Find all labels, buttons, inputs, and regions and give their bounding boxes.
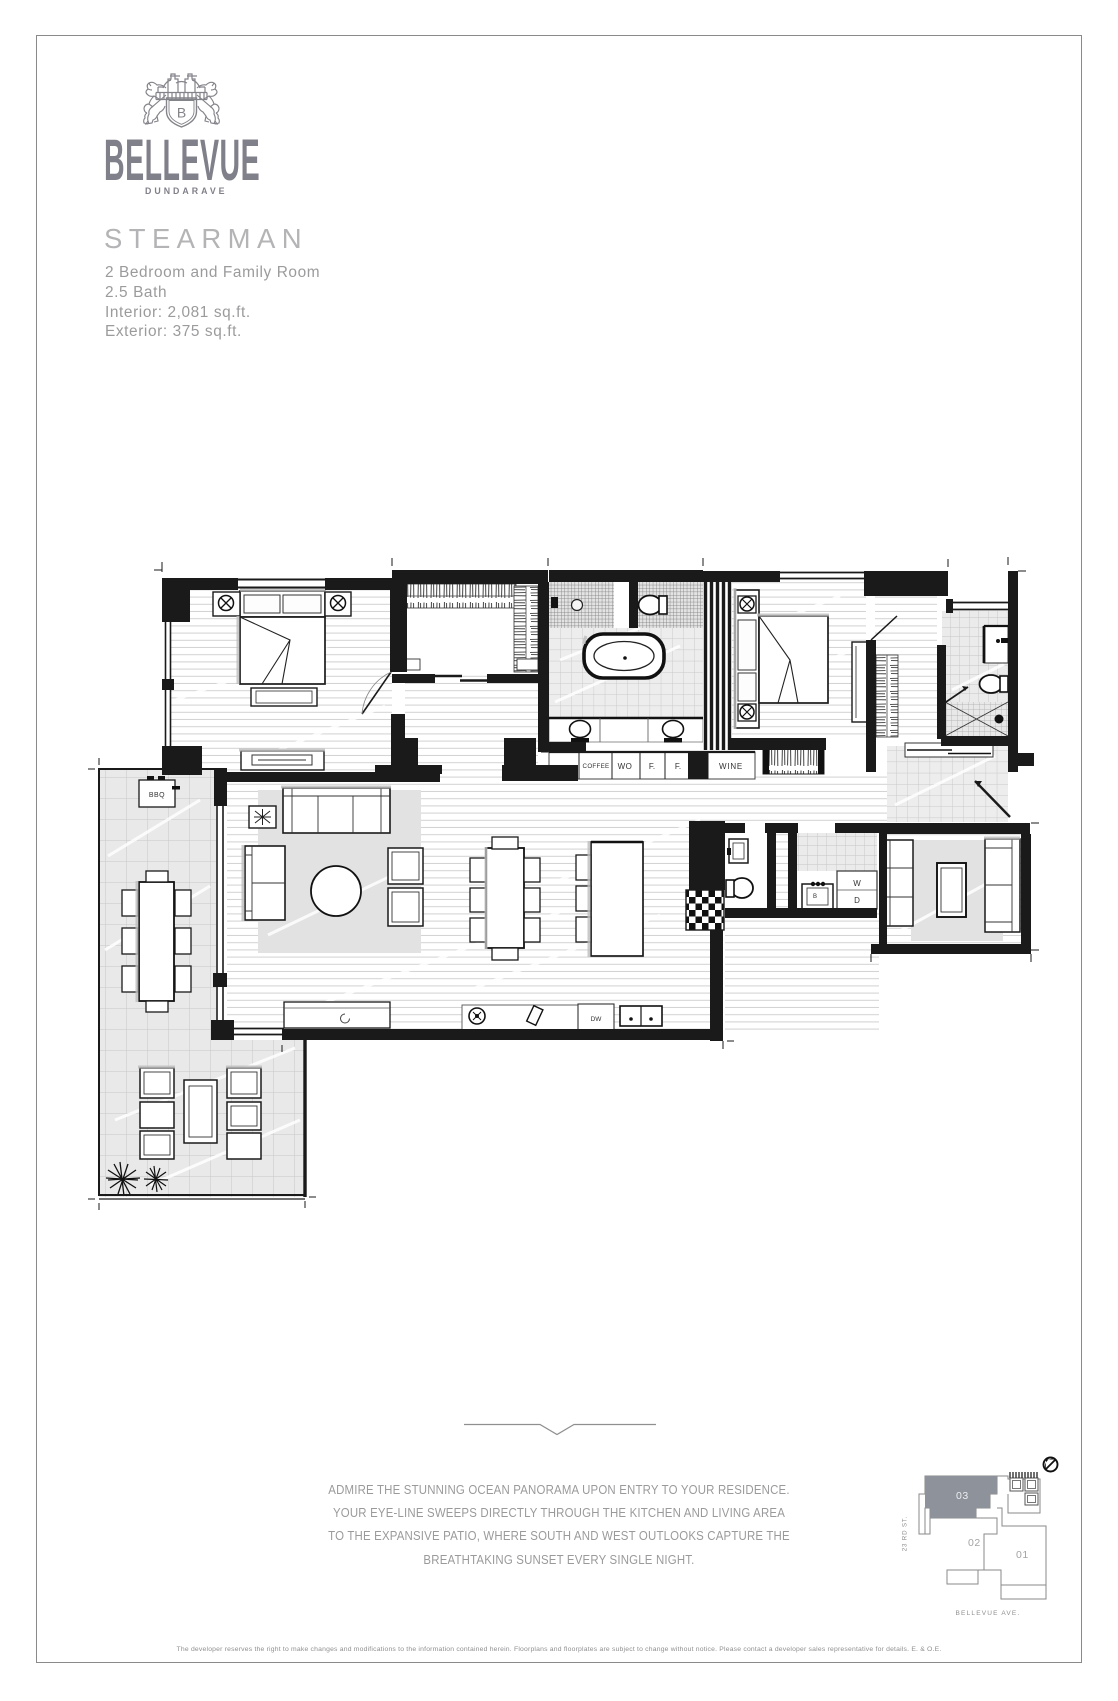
svg-text:B: B (813, 894, 817, 900)
svg-text:01: 01 (1016, 1549, 1029, 1561)
svg-text:F.: F. (675, 762, 681, 771)
svg-text:BELLEVUE AVE.: BELLEVUE AVE. (956, 1610, 1021, 1617)
svg-text:WO: WO (618, 762, 633, 771)
svg-text:F.: F. (649, 762, 655, 771)
svg-text:03: 03 (956, 1490, 969, 1502)
svg-text:DW: DW (591, 1016, 603, 1023)
svg-text:02: 02 (968, 1537, 981, 1549)
svg-text:BBQ: BBQ (149, 792, 165, 799)
svg-text:COFFEE: COFFEE (583, 763, 610, 770)
svg-text:D: D (854, 896, 860, 905)
svg-text:B: B (177, 105, 186, 121)
svg-text:WINE: WINE (719, 762, 743, 771)
svg-text:W: W (853, 879, 861, 888)
